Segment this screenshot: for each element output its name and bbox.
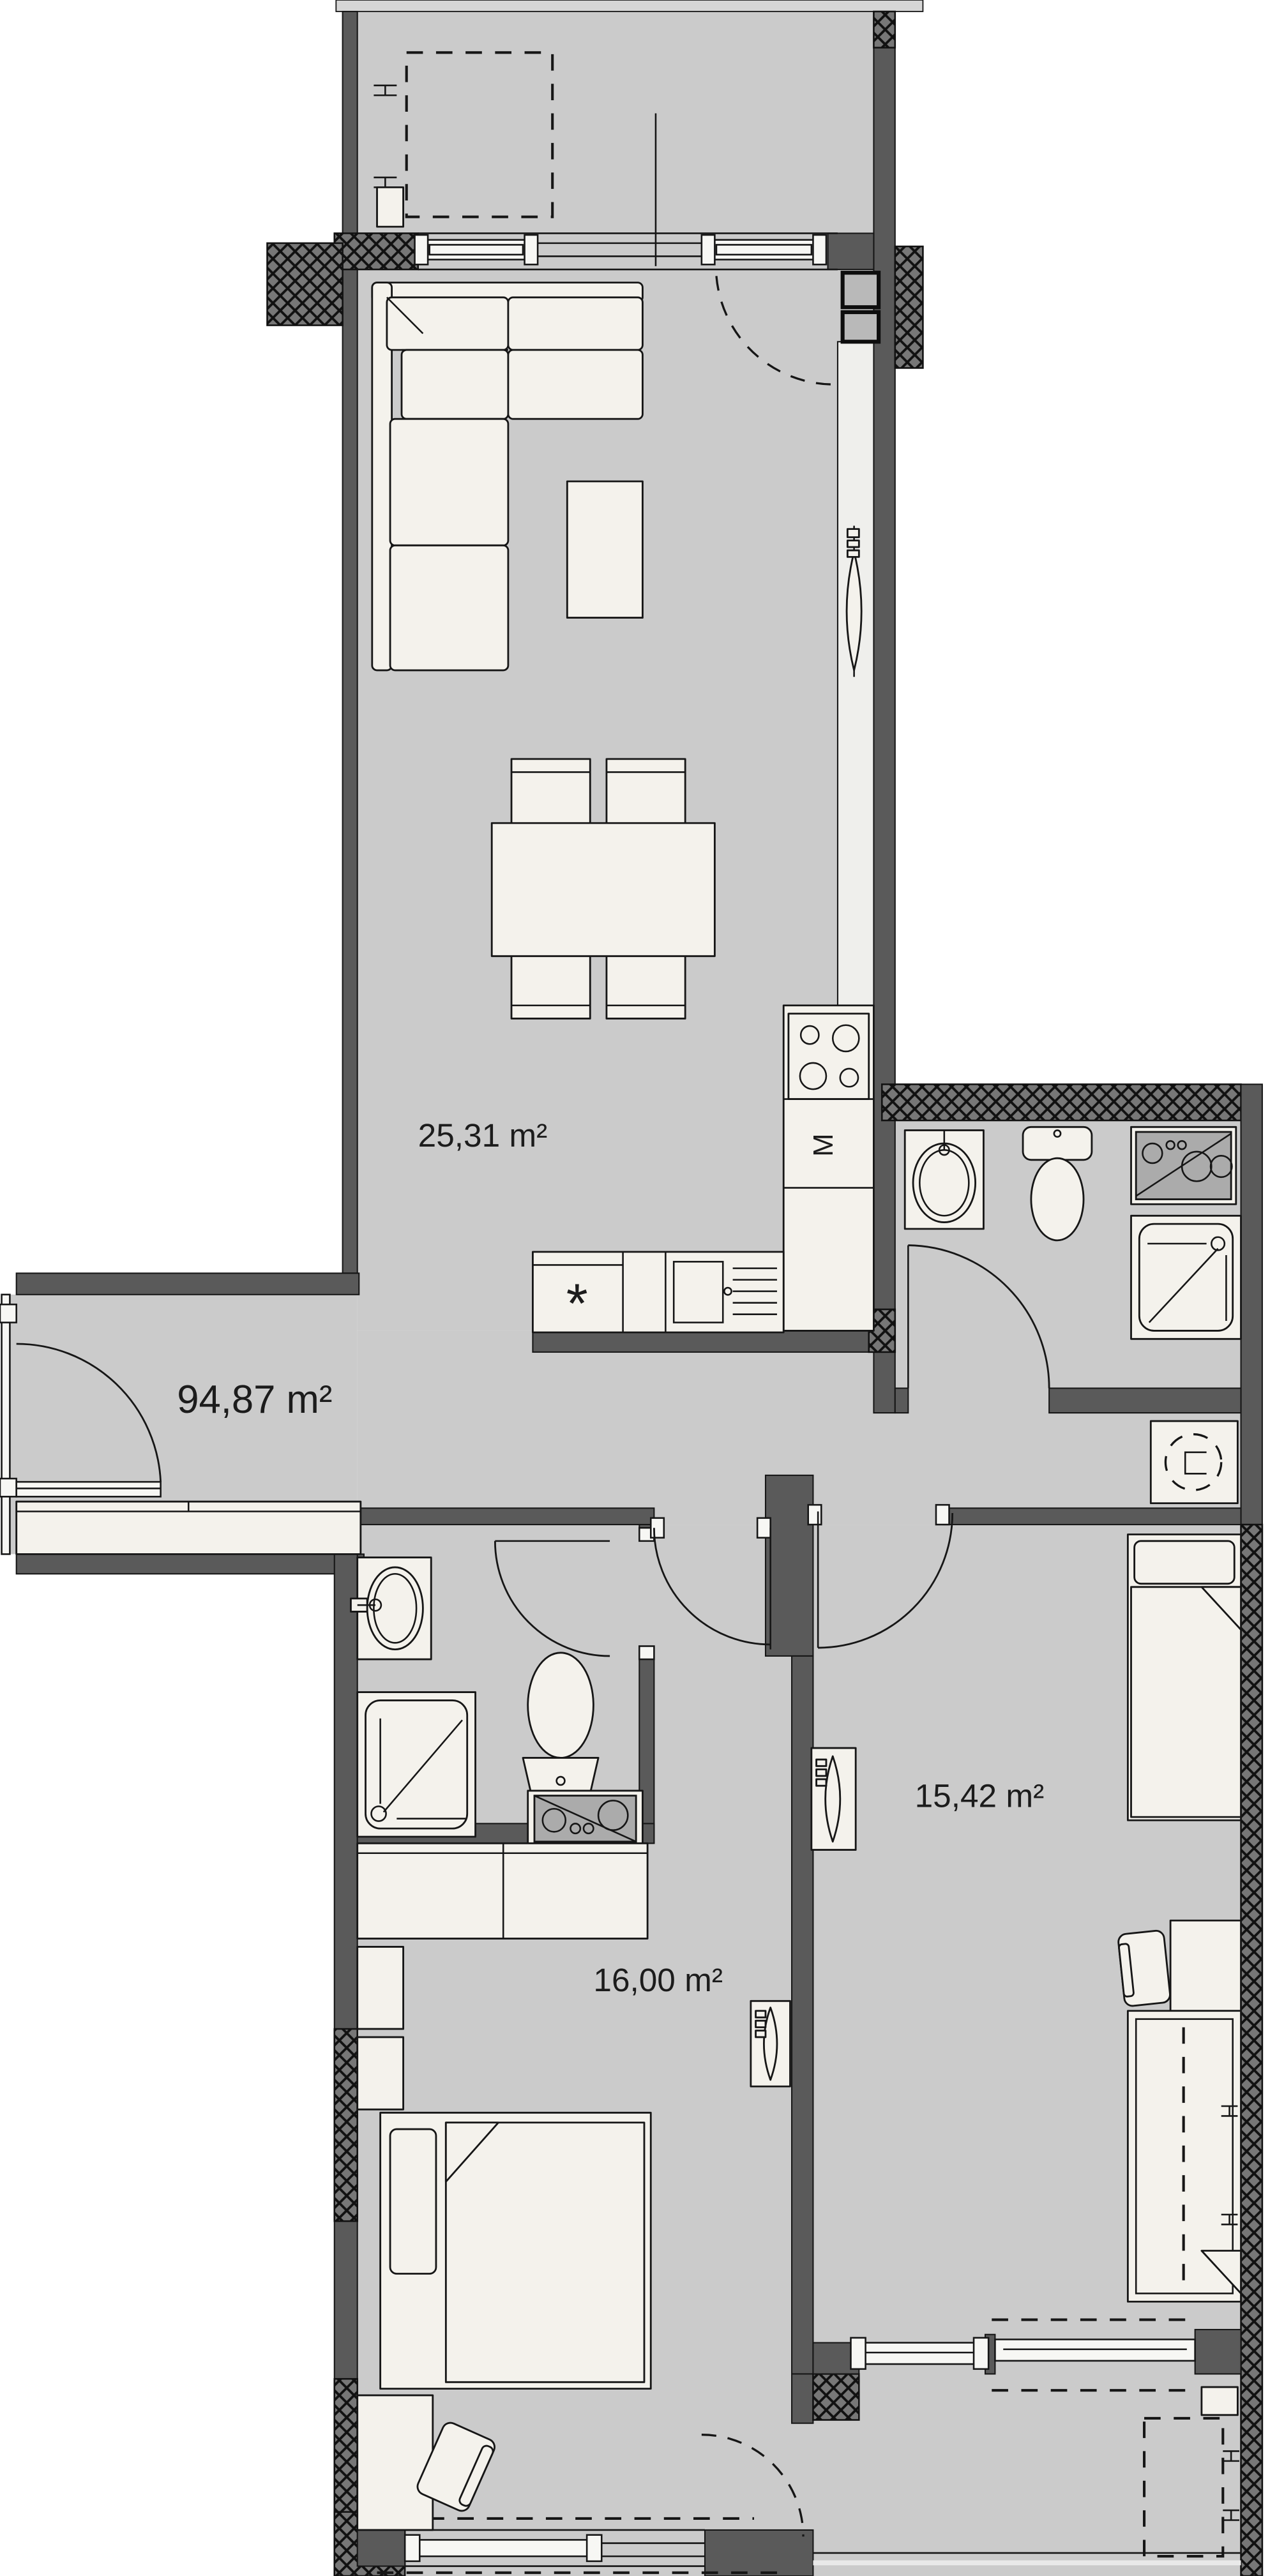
insulation-window-left bbox=[335, 233, 418, 269]
duct-shaft-icon bbox=[843, 273, 879, 307]
wall-right-living bbox=[873, 11, 895, 1413]
wall-window-right-pier bbox=[828, 233, 874, 269]
wall-vestibule-edge bbox=[2, 1295, 10, 1555]
washing-machine-provision-icon bbox=[1151, 1421, 1237, 1503]
floorplan-svg: 25,31 m² M * bbox=[0, 0, 1277, 2576]
living-area-label: 25,31 m² bbox=[418, 1117, 548, 1154]
insulation-bath-top bbox=[882, 1084, 1241, 1120]
wall-left-upper bbox=[343, 11, 358, 1273]
kitchen-appliance-label: M bbox=[808, 1133, 839, 1156]
wall-br-bottom-c bbox=[1195, 2330, 1241, 2374]
bedroom-left-area-label: 16,00 m² bbox=[593, 1961, 723, 1998]
insulation-left-lower bbox=[335, 2029, 358, 2221]
coffee-table-icon bbox=[567, 481, 642, 618]
radiator-icon bbox=[751, 2001, 790, 2086]
toilet-icon bbox=[523, 1653, 598, 1801]
insulation-balcony2-left bbox=[813, 2374, 859, 2420]
fridge-symbol: * bbox=[566, 1272, 588, 1334]
bedroom-right-area-label: 15,42 m² bbox=[915, 1777, 1045, 1814]
sink-icon bbox=[905, 1130, 983, 1228]
insulation-top-right bbox=[873, 11, 895, 48]
nightstand-icon bbox=[358, 2037, 404, 2109]
wall-vestibule-bottom bbox=[17, 1554, 364, 1574]
single-bed-icon bbox=[1128, 1535, 1241, 1821]
wall-right-hatched bbox=[1241, 1525, 1262, 2576]
window-bedroom-right bbox=[850, 2338, 988, 2369]
wall-right-upper bbox=[1241, 1084, 1262, 1525]
wall-bl-window-jamb bbox=[358, 2530, 405, 2566]
duct-shaft-icon bbox=[843, 312, 879, 342]
washing-machine-icon bbox=[1131, 1127, 1236, 1204]
washing-machine-icon bbox=[528, 1791, 643, 1846]
double-bed-icon bbox=[381, 2113, 651, 2388]
stove-icon bbox=[789, 1014, 869, 1099]
wall-bl-bottom-pier bbox=[705, 2530, 813, 2576]
total-area-label: 94,87 m² bbox=[177, 1378, 332, 1422]
wall-bedroom-right-top bbox=[942, 1508, 1241, 1525]
balcony-box-icon bbox=[377, 187, 404, 227]
shelf-icon bbox=[358, 1947, 404, 2029]
shower-icon bbox=[1131, 1216, 1241, 1339]
insulation-outside-left bbox=[267, 243, 342, 326]
wardrobe-icon bbox=[358, 1843, 647, 1938]
shower-icon bbox=[358, 1692, 476, 1837]
insulation-left-corner bbox=[335, 2379, 358, 2530]
wall-vestibule-top bbox=[17, 1273, 359, 1294]
insulation-outside-right bbox=[895, 246, 923, 368]
balcony-box-icon bbox=[1202, 2387, 1237, 2415]
neighbour-slab-strip bbox=[336, 0, 923, 11]
wardrobe-icon bbox=[1128, 2011, 1241, 2301]
wall-divider-foot bbox=[792, 2374, 813, 2423]
sink-icon bbox=[351, 1558, 431, 1660]
wall-corridor-stub bbox=[766, 1475, 813, 1656]
wall-bedroom-divider bbox=[792, 1656, 813, 2374]
floorplan-canvas: 25,31 m² M * bbox=[0, 0, 1277, 2576]
wall-bath-top-bottom bbox=[1049, 1388, 1241, 1413]
desk-icon bbox=[1117, 1920, 1241, 2011]
wall-bath-bl-top bbox=[335, 1508, 654, 1525]
radiator-icon bbox=[812, 1748, 856, 1850]
wall-left-lower bbox=[335, 1508, 358, 2530]
wall-bath-top-stub bbox=[895, 1388, 909, 1413]
